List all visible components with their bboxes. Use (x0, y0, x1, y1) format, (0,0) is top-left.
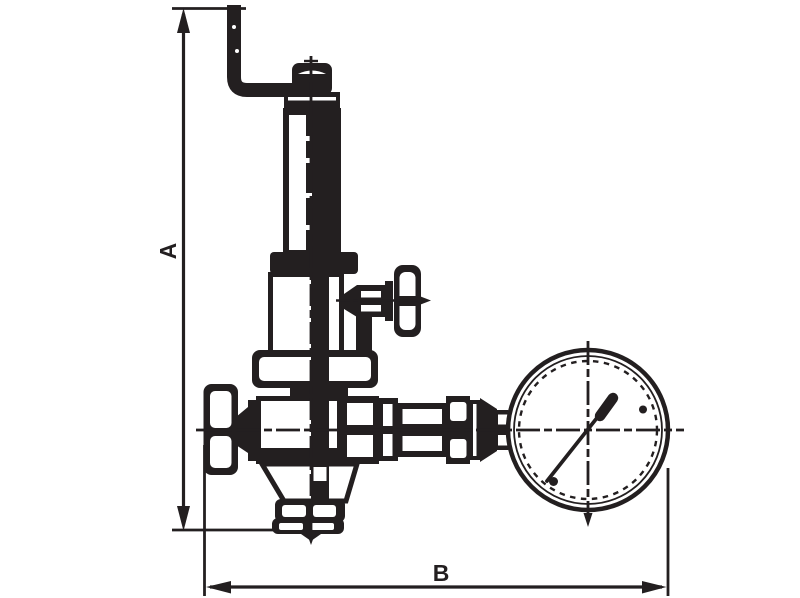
arrow-left-icon (206, 581, 231, 594)
arrow-up-icon (177, 8, 190, 33)
valve-dimension-drawing: A B (0, 0, 800, 598)
pipe-highlight (403, 436, 443, 451)
arrow-right-icon (642, 581, 667, 594)
union-flat (450, 439, 467, 458)
body-skirt (262, 464, 357, 501)
collar-slot (383, 434, 393, 456)
valve-spindle (311, 272, 329, 355)
tap-stem-highlight (361, 305, 381, 312)
spring-chamber (271, 275, 342, 353)
gauge-centerline-tip (584, 513, 593, 527)
arrow-down-icon (177, 506, 190, 531)
dimension-a-label: A (155, 243, 181, 260)
ring-highlight (473, 404, 477, 456)
flange-face (313, 505, 336, 517)
gauge-dial-dot (639, 406, 647, 414)
pipe-highlight-dot (232, 25, 236, 29)
union-flat (450, 402, 467, 421)
flange-face (279, 523, 303, 530)
bottom-outlet (262, 462, 357, 541)
tap-centerline-tip (418, 296, 431, 306)
housing-flange (270, 252, 358, 274)
technical-drawing-page: A B (0, 0, 800, 598)
pipe-highlight-dot (235, 49, 239, 53)
handwheel-face-upper (210, 391, 232, 428)
collar-slot (383, 404, 393, 426)
skirt-spindle-highlight (314, 467, 327, 481)
boss-highlight (347, 435, 373, 457)
boss-highlight (347, 403, 373, 425)
dimension-b-label: B (433, 560, 450, 586)
gauge-needle-hub (549, 477, 558, 486)
body-lower-band (261, 448, 339, 462)
tap-stem-highlight (361, 291, 381, 298)
flange-face (311, 523, 334, 530)
relief-valve-assembly (204, 5, 671, 541)
tap-down-pipe (356, 314, 372, 352)
bonnet-neck (290, 384, 348, 398)
handwheel-face-lower (210, 436, 232, 468)
pipe-highlight (403, 409, 443, 424)
flange-face (282, 505, 306, 517)
test-tap (344, 265, 421, 352)
housing-highlight-stripe (289, 115, 306, 250)
